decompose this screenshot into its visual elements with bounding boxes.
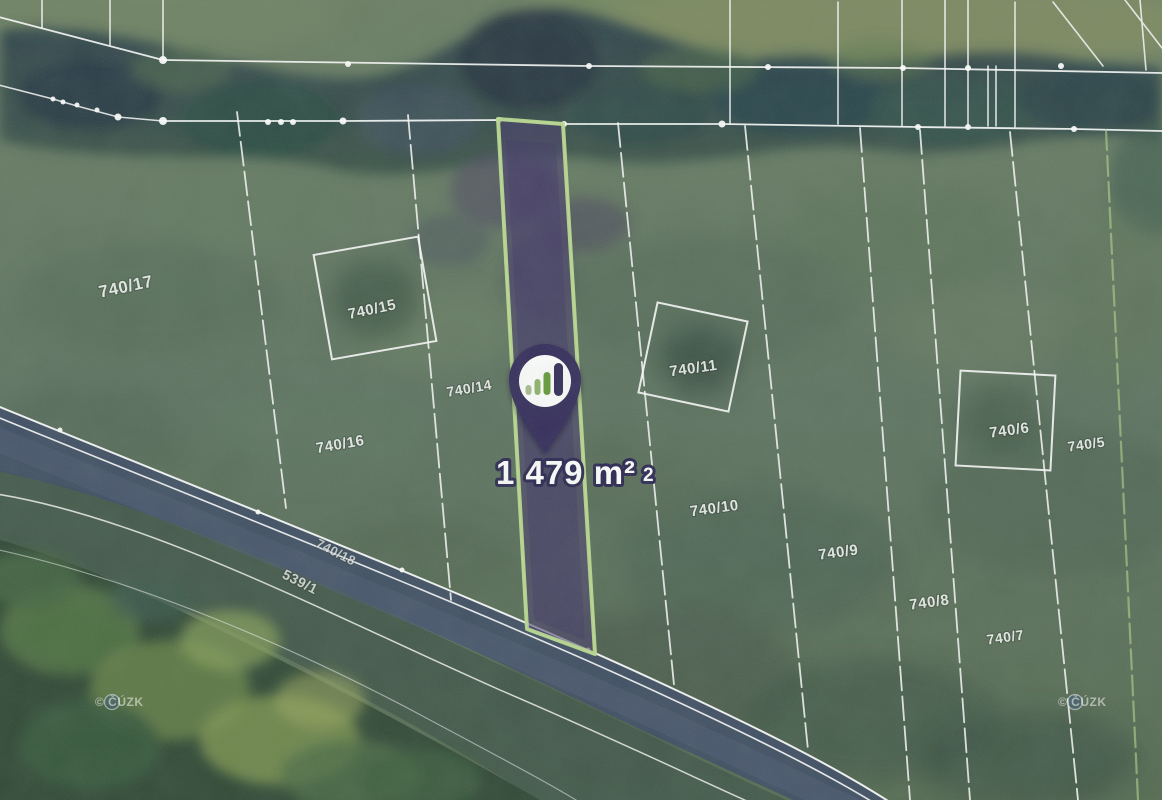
grain-overlay <box>0 0 1162 800</box>
map-canvas[interactable]: 740/17 740/15 740/14 740/16 740/11 740/1… <box>0 0 1162 800</box>
satellite-map: 740/17 740/15 740/14 740/16 740/11 740/1… <box>0 0 1162 800</box>
